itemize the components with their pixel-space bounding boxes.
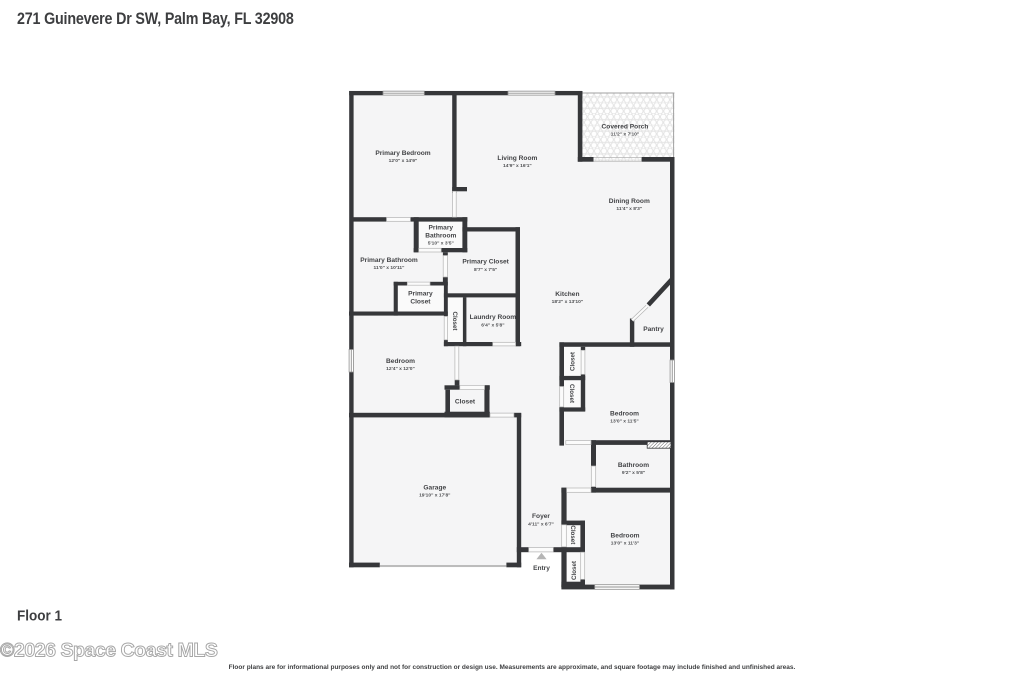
svg-text:11'4" x 8'3": 11'4" x 8'3" xyxy=(616,206,642,212)
svg-text:9'2" x 5'8": 9'2" x 5'8" xyxy=(622,470,645,476)
svg-text:Laundry Room: Laundry Room xyxy=(470,314,517,321)
svg-text:Bathroom: Bathroom xyxy=(425,233,456,240)
svg-text:5'10" x 3'5": 5'10" x 3'5" xyxy=(428,240,454,246)
svg-text:Closet: Closet xyxy=(451,312,458,331)
svg-text:8'7" x 7'5": 8'7" x 7'5" xyxy=(474,267,497,273)
svg-text:Bedroom: Bedroom xyxy=(611,532,640,539)
svg-text:Foyer: Foyer xyxy=(532,513,550,520)
svg-text:11'2" x 7'10": 11'2" x 7'10" xyxy=(611,132,639,138)
svg-text:Pantry: Pantry xyxy=(643,326,664,333)
svg-text:Entry: Entry xyxy=(533,565,550,572)
svg-text:Primary Closet: Primary Closet xyxy=(462,259,509,266)
svg-text:Closet: Closet xyxy=(410,299,431,306)
svg-text:Primary Bathroom: Primary Bathroom xyxy=(360,257,418,264)
svg-text:Closet: Closet xyxy=(455,398,476,405)
svg-text:6'4" x 5'8": 6'4" x 5'8" xyxy=(481,322,504,328)
svg-text:271 Guinevere Dr SW, Palm Bay,: 271 Guinevere Dr SW, Palm Bay, FL 32908 xyxy=(17,10,294,28)
svg-text:13'0" x 11'3": 13'0" x 11'3" xyxy=(611,541,639,547)
svg-text:Floor 1: Floor 1 xyxy=(17,607,62,624)
svg-text:Bedroom: Bedroom xyxy=(610,410,639,417)
svg-text:Covered Porch: Covered Porch xyxy=(602,123,649,130)
svg-text:18'2" x 13'10": 18'2" x 13'10" xyxy=(552,299,583,305)
svg-text:Floor plans are for informatio: Floor plans are for informational purpos… xyxy=(229,664,796,671)
svg-text:Garage: Garage xyxy=(423,484,446,491)
svg-text:Primary: Primary xyxy=(408,290,433,297)
svg-text:4'11" x 6'7": 4'11" x 6'7" xyxy=(528,522,554,528)
svg-text:11'0" x 10'11": 11'0" x 10'11" xyxy=(374,265,405,271)
svg-text:Closet: Closet xyxy=(570,352,577,371)
svg-text:Bedroom: Bedroom xyxy=(386,358,415,365)
svg-text:©2026 Space Coast MLS: ©2026 Space Coast MLS xyxy=(0,640,218,662)
svg-text:Closet: Closet xyxy=(568,384,575,403)
svg-text:Living Room: Living Room xyxy=(497,155,537,162)
svg-text:19'10" x 17'8": 19'10" x 17'8" xyxy=(419,493,450,499)
svg-text:14'9" x 16'1": 14'9" x 16'1" xyxy=(503,163,532,169)
svg-text:Dining Room: Dining Room xyxy=(609,198,650,205)
svg-text:Primary: Primary xyxy=(429,224,454,231)
svg-text:Closet: Closet xyxy=(569,525,576,544)
svg-text:12'4" x 12'0": 12'4" x 12'0" xyxy=(386,366,415,372)
svg-text:Bathroom: Bathroom xyxy=(618,462,649,469)
svg-text:Primary Bedroom: Primary Bedroom xyxy=(375,150,430,157)
svg-text:Kitchen: Kitchen xyxy=(555,291,579,298)
svg-text:13'0" x 11'5": 13'0" x 11'5" xyxy=(610,419,638,425)
svg-text:Closet: Closet xyxy=(571,561,578,580)
svg-text:12'0" x 14'9": 12'0" x 14'9" xyxy=(389,158,418,164)
